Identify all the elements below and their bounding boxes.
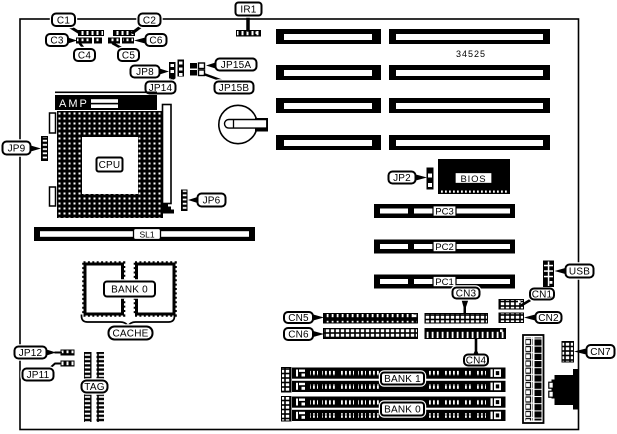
svg-text:BANK 0: BANK 0 <box>384 405 421 416</box>
svg-text:JP11: JP11 <box>27 370 50 381</box>
svg-text:TAG: TAG <box>84 382 104 393</box>
svg-text:JP6: JP6 <box>203 196 221 207</box>
svg-text:CN2: CN2 <box>538 313 559 324</box>
svg-text:PC2: PC2 <box>435 242 453 253</box>
svg-text:JP12: JP12 <box>19 348 43 359</box>
svg-text:34525: 34525 <box>456 49 486 59</box>
svg-text:CN4: CN4 <box>466 356 487 367</box>
svg-text:USB: USB <box>569 267 590 278</box>
svg-text:BANK 1: BANK 1 <box>384 374 421 385</box>
svg-text:BIOS: BIOS <box>461 174 487 185</box>
svg-text:CN6: CN6 <box>288 330 309 341</box>
svg-text:CN3: CN3 <box>456 289 477 300</box>
svg-text:JP15A: JP15A <box>221 60 252 71</box>
svg-text:CN1: CN1 <box>532 290 553 301</box>
svg-text:PC1: PC1 <box>435 277 453 288</box>
svg-text:CN7: CN7 <box>590 347 611 358</box>
svg-text:C1: C1 <box>57 15 70 26</box>
svg-text:CPU: CPU <box>99 160 121 171</box>
svg-text:JP9: JP9 <box>8 144 26 155</box>
svg-text:CN5: CN5 <box>288 313 309 324</box>
svg-text:SL1: SL1 <box>139 230 154 240</box>
svg-text:CACHE: CACHE <box>112 329 148 340</box>
svg-text:PC3: PC3 <box>435 207 453 218</box>
svg-text:JP8: JP8 <box>136 67 154 78</box>
svg-text:C6: C6 <box>149 36 162 47</box>
svg-text:C4: C4 <box>78 51 91 62</box>
svg-text:IR1: IR1 <box>240 5 256 16</box>
svg-text:JP15B: JP15B <box>219 83 250 94</box>
svg-text:JP2: JP2 <box>393 173 411 184</box>
svg-text:C5: C5 <box>122 51 135 62</box>
svg-text:BANK 0: BANK 0 <box>111 285 148 296</box>
svg-text:AMP: AMP <box>59 98 89 110</box>
svg-text:C3: C3 <box>50 36 63 47</box>
svg-text:C2: C2 <box>143 15 156 26</box>
